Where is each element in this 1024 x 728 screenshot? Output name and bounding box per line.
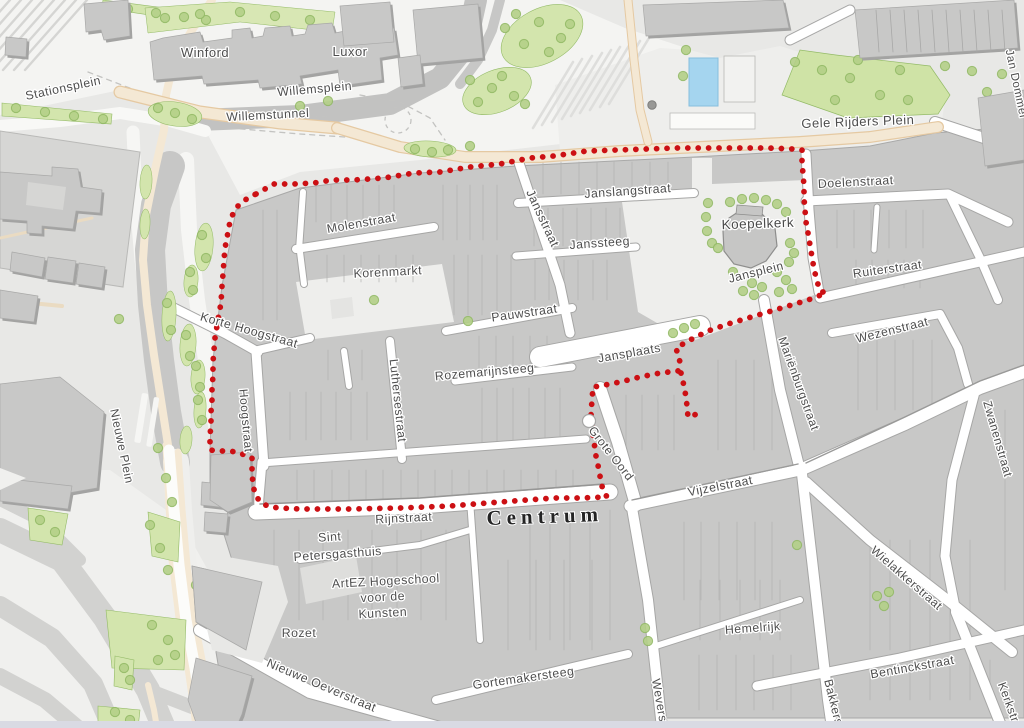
svg-text:Centrum: Centrum [486,502,603,530]
svg-text:Koepelkerk: Koepelkerk [721,215,794,233]
svg-text:voor de: voor de [360,589,405,605]
svg-text:Rozet: Rozet [282,626,317,640]
svg-text:Luxor: Luxor [332,44,367,59]
svg-text:Winford: Winford [181,45,229,60]
svg-text:Sint: Sint [318,529,342,545]
svg-text:Kunsten: Kunsten [358,605,407,622]
svg-text:Rijnstraat: Rijnstraat [375,510,433,527]
